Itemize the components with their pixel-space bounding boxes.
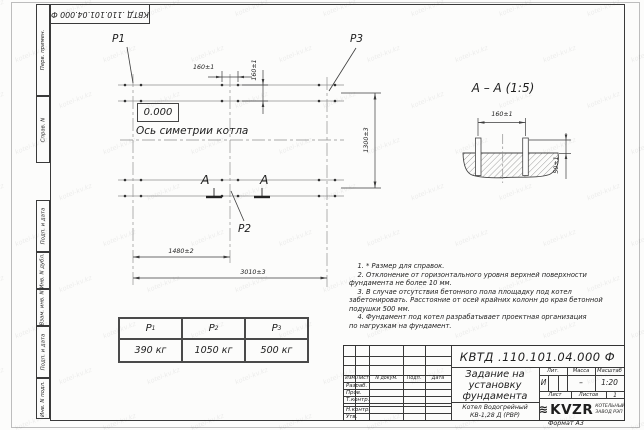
note-line: 2. Отклонение от горизонтального уровня … (349, 271, 617, 280)
note-line: фундамента не более 10 мм. (349, 279, 617, 288)
load-point-p3-label: P3 (350, 33, 363, 45)
company-tagline: КОТЕЛЬНЫЙ ЗАВОД РЭП (595, 404, 625, 414)
tb-sheets-value: 1 (606, 392, 624, 399)
tb-sheet-label: Лист (539, 392, 571, 398)
tb-title-line: фундамента (463, 391, 528, 402)
dim-plan-mid-1480: 1480±2 (156, 248, 206, 255)
elevation-mark-box: 0.000 (137, 103, 179, 122)
load-symbol-sub: 2 (215, 325, 219, 332)
tb-mass-label: Масса (567, 368, 595, 374)
dim-section-bolt-spacing: 160±1 (478, 111, 526, 118)
note-line: по нагрузкам на фундамент. (349, 322, 617, 331)
load-symbol-sub: 3 (278, 325, 282, 332)
section-letter-a-right: A (260, 172, 269, 187)
dim-section-bolt-height: 50±1 (553, 152, 563, 178)
note-line: забетонировать. Расстояние от осей крайн… (349, 296, 617, 305)
tb-scale-value: 1:20 (595, 378, 624, 387)
tb-title-line: Задание на (465, 369, 524, 380)
section-view-foundation (463, 134, 558, 183)
tb-product-line: Котел Водогрейный (462, 404, 528, 412)
company-tagline-line: КОТЕЛЬНЫЙ (595, 404, 625, 409)
dim-plan-total-3010: 3010±3 (228, 269, 278, 276)
load-point-p1-label: P1 (112, 33, 125, 45)
loads-table-header-p3: P3 (245, 318, 308, 339)
tb-col-podp: Подп. (403, 376, 425, 381)
spring-logo-icon: ≋ (539, 403, 548, 416)
section-view-title: А – А (1:5) (453, 81, 553, 95)
company-logo: ≋ KVZR КОТЕЛЬНЫЙ ЗАВОД РЭП (540, 399, 624, 420)
anchor-bolt (523, 138, 529, 176)
company-logo-text: KVZR (550, 402, 593, 418)
tb-product-line: КВ-1,28 Д (РВР) (470, 412, 520, 420)
loads-table-value-p2: 1050 кг (182, 339, 245, 362)
dim-bolt-spacing-vertical: 160±1 (251, 57, 261, 83)
boiler-symmetry-axis-label: Ось симетрии котла (136, 125, 248, 137)
tb-title-line: установку (469, 380, 522, 391)
technical-notes: 1. * Размер для справок. 2. Отклонение о… (349, 262, 617, 330)
loads-table-header-p1: P1 (119, 318, 182, 339)
section-letter-a-left: A (201, 172, 210, 187)
company-tagline-line: ЗАВОД РЭП (595, 410, 625, 415)
dim-plan-width-1300: 1300±3 (363, 123, 373, 157)
loads-table: P1 P2 P3 390 кг 1050 кг 500 кг (118, 317, 309, 363)
tb-sheets-label: Листов (571, 392, 606, 398)
loads-table-value-p3: 500 кг (245, 339, 308, 362)
dim-bolt-spacing-horizontal: 160±1 (193, 64, 214, 71)
tb-scale-label: Масштаб (595, 368, 624, 374)
note-line: 1. * Размер для справок. (349, 262, 617, 271)
tb-row-nkontr: Н.контр. (346, 407, 370, 413)
tb-mass-value: – (567, 378, 595, 387)
note-line: 4. Фундамент под котел разрабатывает про… (349, 313, 617, 322)
tb-col-data: Дата (425, 376, 451, 381)
format-label: Формат А3 (548, 420, 584, 427)
tb-row-prov: Пров. (346, 390, 362, 396)
tb-lit-value: И (539, 378, 548, 387)
anchor-bolt (475, 138, 481, 176)
tb-col-izm-list: Изм.Лист (344, 376, 370, 381)
loads-table-header-p2: P2 (182, 318, 245, 339)
tb-lit-label: Лит. (539, 368, 567, 374)
load-symbol-sub: 1 (152, 325, 156, 332)
tb-product-name: Котел Водогрейный КВ-1,28 Д (РВР) (451, 403, 539, 420)
title-block: Изм.Лист N докум. Подп. Дата Разраб. Про… (343, 345, 625, 421)
tb-row-tkontr: Т.контр. (346, 397, 369, 403)
tb-row-razrab: Разраб. (346, 383, 367, 389)
tb-col-n-dokum: N докум. (370, 376, 403, 381)
drawing-sheet: Перв. примен. Справ. N Подп. и дата Инв.… (0, 0, 644, 430)
elevation-value: 0.000 (144, 107, 173, 118)
tb-row-utv: Утв. (346, 414, 357, 420)
note-line: подушки 500 мм. (349, 305, 617, 314)
loads-table-value-p1: 390 кг (119, 339, 182, 362)
tb-designation: КВТД .110.101.04.000 Ф (451, 346, 624, 367)
load-point-p2-label: P2 (238, 223, 251, 235)
tb-document-title: Задание на установку фундамента (451, 368, 539, 402)
note-line: 3. В случае отсутствия бетонного пола пл… (349, 288, 617, 297)
